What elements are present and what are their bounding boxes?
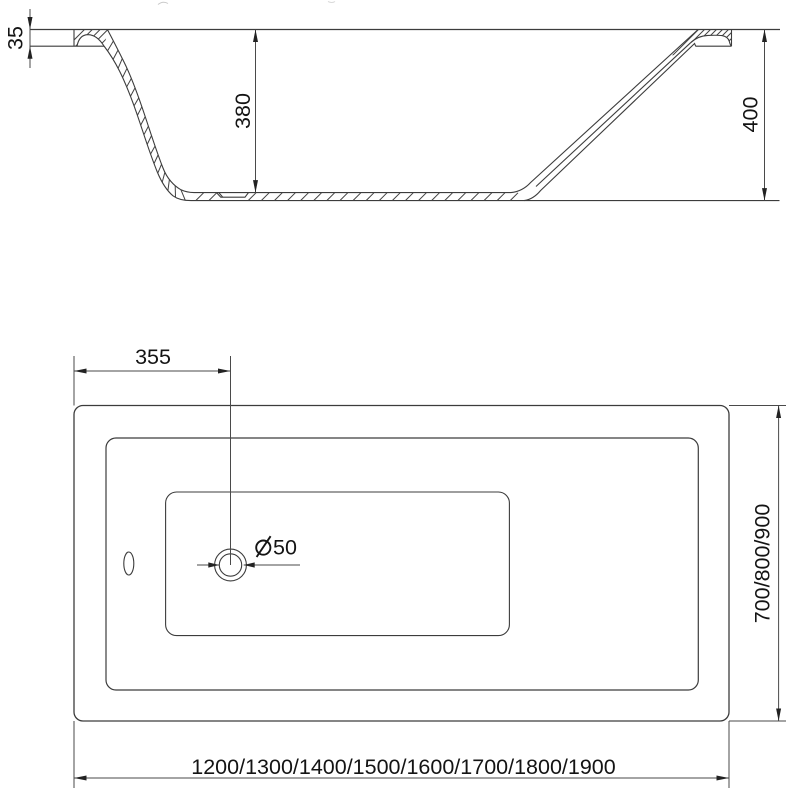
- svg-text:355: 355: [135, 345, 171, 369]
- svg-text:380: 380: [231, 93, 255, 129]
- svg-text:700/800/900: 700/800/900: [751, 504, 775, 624]
- svg-text:35: 35: [3, 26, 27, 50]
- svg-text:1200/1300/1400/1500/1600/1700/: 1200/1300/1400/1500/1600/1700/1800/1900: [191, 755, 615, 779]
- svg-text:400: 400: [739, 97, 763, 133]
- svg-text:50: 50: [273, 536, 297, 560]
